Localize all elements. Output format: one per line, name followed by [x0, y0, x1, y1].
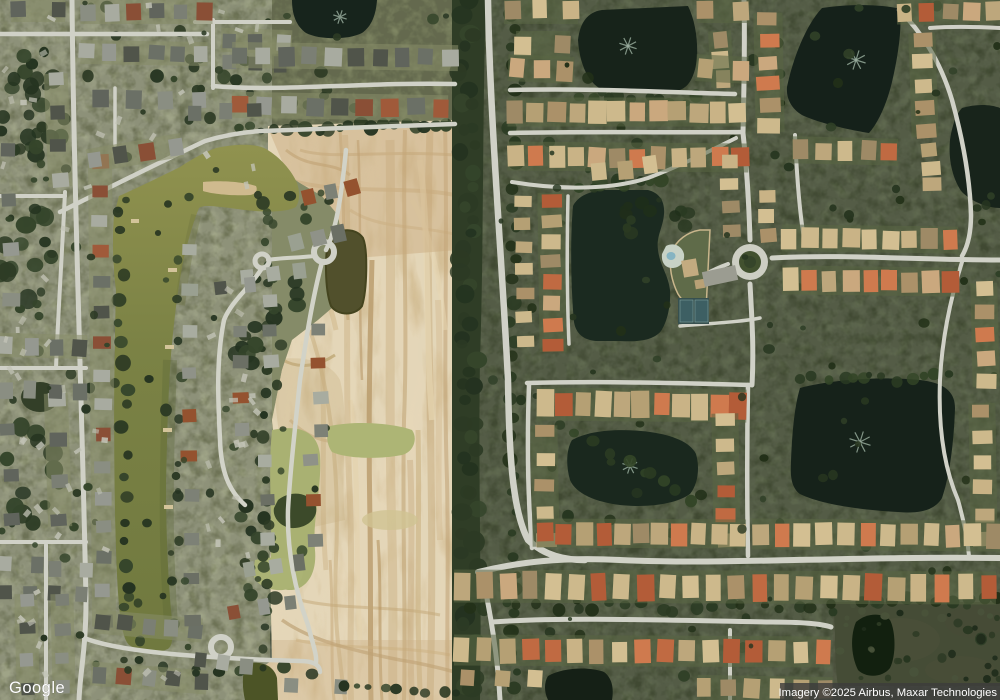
svg-text:Imagery ©2025 Airbus, Maxar Te: Imagery ©2025 Airbus, Maxar Technologies	[779, 687, 998, 699]
svg-text:Google: Google	[9, 679, 65, 697]
